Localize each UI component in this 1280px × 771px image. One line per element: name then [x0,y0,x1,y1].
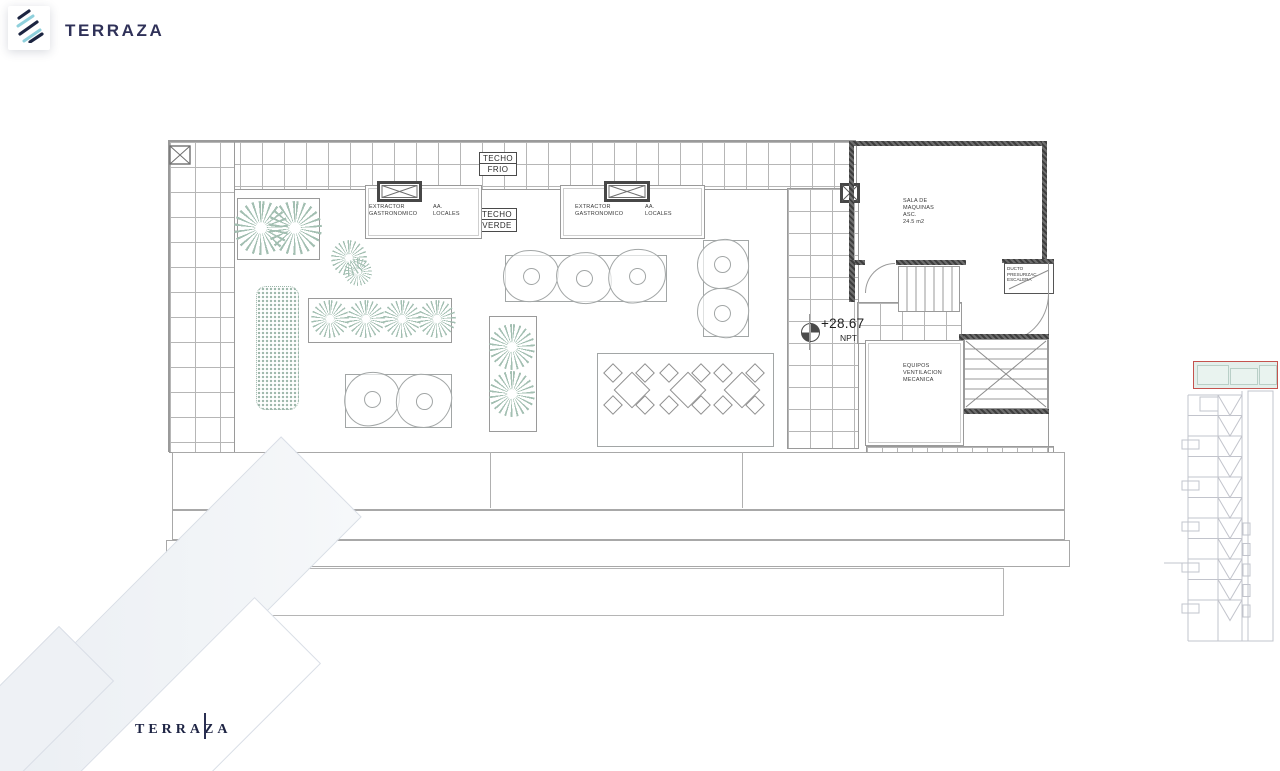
chair-cushion [714,304,732,322]
chair-cushion [363,390,381,408]
current-floor-highlight[interactable] [1193,361,1278,389]
building-section[interactable] [1180,355,1280,651]
door-arc [865,263,895,293]
floor-caption: TERRAZA [135,722,231,738]
ducto-wall-top [1002,259,1054,263]
locales-label-1: AA. LOCALES [433,204,467,218]
extractor-label-1: EXTRACTOR GASTRONOMICO [369,204,427,218]
shrub-plant [383,300,421,338]
equipos-label: EQUIPOS VENTILACION MECANICA [903,363,963,384]
locales-label-2: AA. LOCALES [645,204,679,218]
level-datum: NPT [840,333,857,343]
machine-room-wall-left [849,141,854,265]
shrub-plant [418,300,456,338]
label-techo-frio-2: FRIO [479,163,517,176]
caption-divider [204,713,206,739]
palm-plant [489,371,535,417]
extractor-label-2: EXTRACTOR GASTRONOMICO [575,204,633,218]
shrub-plant [347,300,385,338]
chair-cushion [714,255,732,273]
machine-room-wall-left-jog [849,260,855,302]
label-techo-verde-2: VERDE [477,219,517,232]
stair-run-icon [898,266,960,317]
shrub-plant [311,300,349,338]
facade-divider [742,452,743,508]
highlight-cell [1259,365,1277,385]
level-marker-axis [809,314,810,350]
highlight-cell [1230,368,1258,385]
equipos-room [865,340,964,446]
hedge-planter [256,286,299,410]
chair-cushion [628,267,647,286]
palm-plant [344,258,372,286]
highlight-cell [1197,365,1229,385]
machine-room-wall-top [849,141,1047,146]
plan-right-edge [1048,263,1049,452]
facade-base [222,568,1004,616]
palm-plant [489,324,535,370]
roof-tiles-left [169,141,235,453]
floorplan-viewer: TERRAZA TECHO FRIO TECHO VERDE EXTRACTOR… [0,0,1280,771]
chair-cushion [522,267,540,285]
machine-room-wall-right [1042,141,1047,267]
roof-tiles-top [195,141,857,190]
machine-room-wall-bottom-b [896,260,966,265]
palm-plant [268,201,322,255]
facade-divider [490,452,491,508]
column-box-icon [169,145,191,170]
chair-cushion [575,269,593,287]
stair-flight-icon [964,339,1048,414]
chair-cushion [415,392,433,410]
level-marker-icon [801,323,820,342]
ducto-box: DUCTO PRESURIZAC. ESCALERA [1004,263,1054,294]
level-value: +28.67 [821,316,864,331]
machine-room-wall-bottom-a [855,260,865,265]
sala-maquinas-label: SALA DE MAQUINAS ASC. 24.5 m2 [903,198,983,226]
